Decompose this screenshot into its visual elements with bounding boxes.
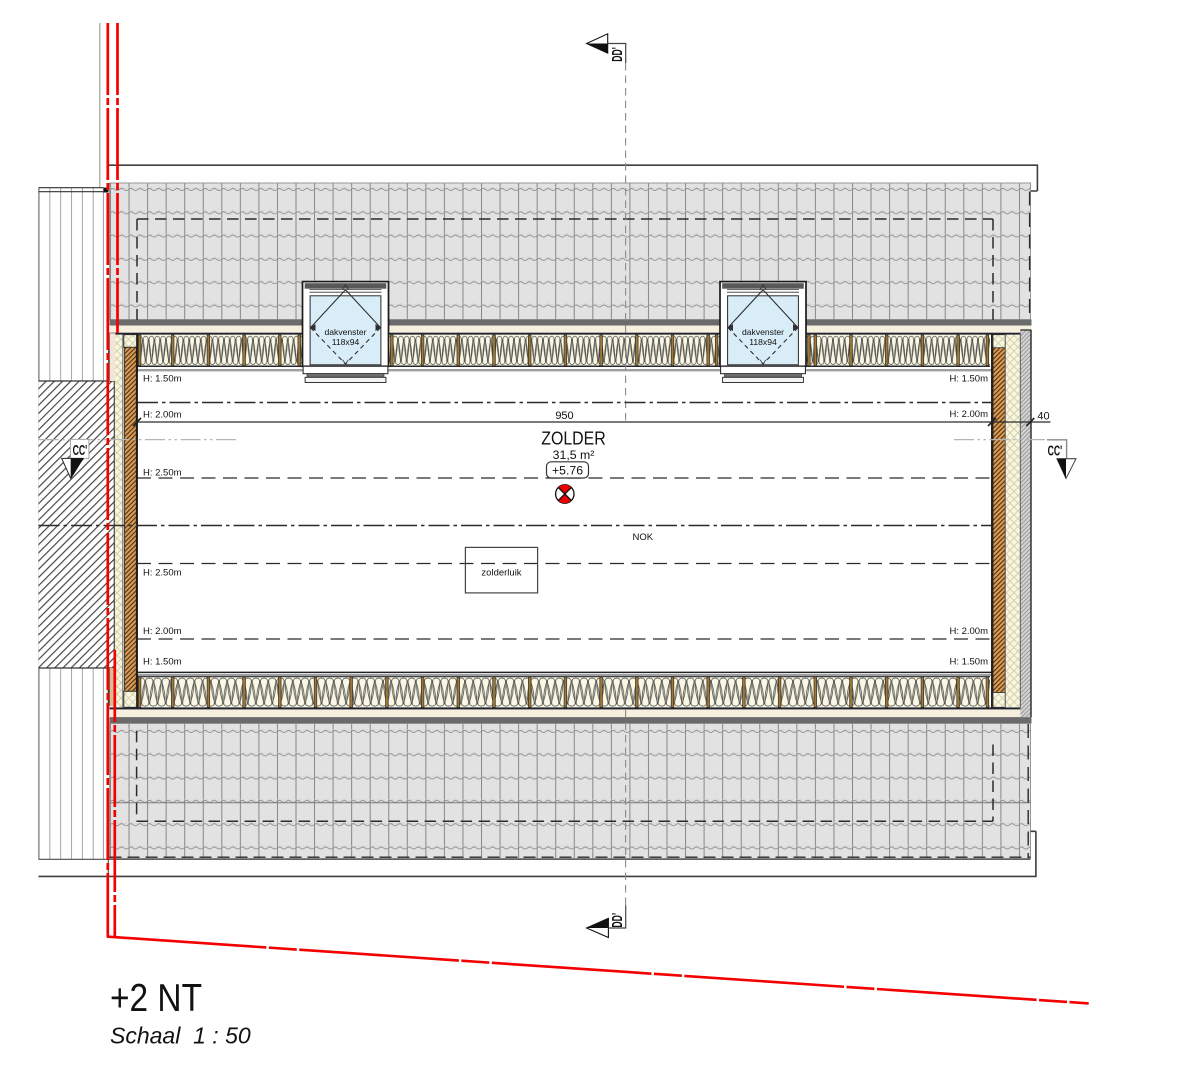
svg-text:dakvenster: dakvenster: [324, 327, 366, 337]
svg-text:H: 2.00m: H: 2.00m: [143, 410, 182, 421]
svg-text:31,5 m²: 31,5 m²: [553, 448, 595, 462]
svg-text:118x94: 118x94: [749, 337, 777, 347]
svg-text:H: 1.50m: H: 1.50m: [143, 657, 182, 668]
svg-text:40: 40: [1037, 411, 1049, 423]
svg-text:Schaal 1 : 50: Schaal 1 : 50: [110, 1023, 251, 1049]
svg-text:H: 1.50m: H: 1.50m: [949, 657, 988, 668]
svg-text:zolderluik: zolderluik: [481, 568, 521, 579]
svg-text:H: 2.50m: H: 2.50m: [143, 468, 182, 479]
svg-text:950: 950: [555, 410, 573, 422]
svg-text:DD': DD': [608, 913, 625, 928]
svg-text:H: 1.50m: H: 1.50m: [143, 374, 182, 385]
svg-text:CC': CC': [1048, 442, 1063, 459]
svg-text:H: 2.00m: H: 2.00m: [143, 626, 182, 637]
svg-text:118x94: 118x94: [332, 337, 360, 347]
svg-text:NOK: NOK: [633, 532, 654, 543]
svg-text:dakvenster: dakvenster: [742, 327, 784, 337]
svg-text:H: 2.00m: H: 2.00m: [949, 409, 988, 420]
svg-text:H: 1.50m: H: 1.50m: [949, 374, 988, 385]
svg-text:CC': CC': [73, 442, 88, 459]
svg-text:+5.76: +5.76: [552, 464, 583, 478]
svg-text:DD': DD': [608, 47, 625, 62]
svg-text:ZOLDER: ZOLDER: [541, 428, 606, 449]
svg-text:H: 2.50m: H: 2.50m: [143, 568, 182, 579]
svg-text:H: 2.00m: H: 2.00m: [949, 626, 988, 637]
svg-text:+2 NT: +2 NT: [110, 977, 202, 1020]
